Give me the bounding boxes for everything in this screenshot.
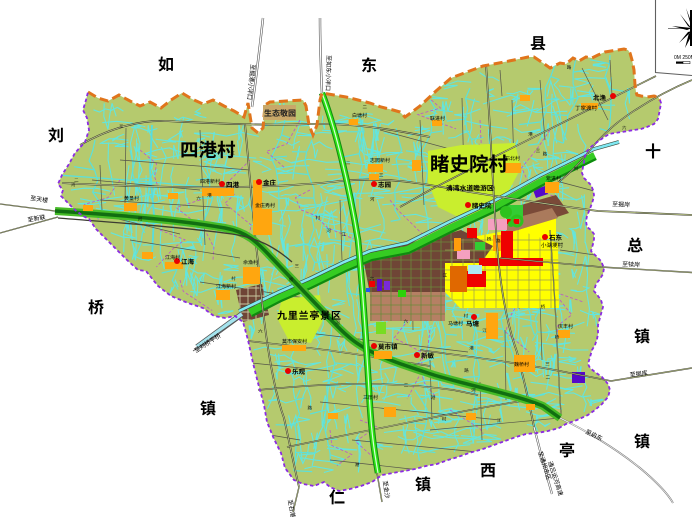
svg-text:0M 250M: 0M 250M	[674, 55, 692, 61]
